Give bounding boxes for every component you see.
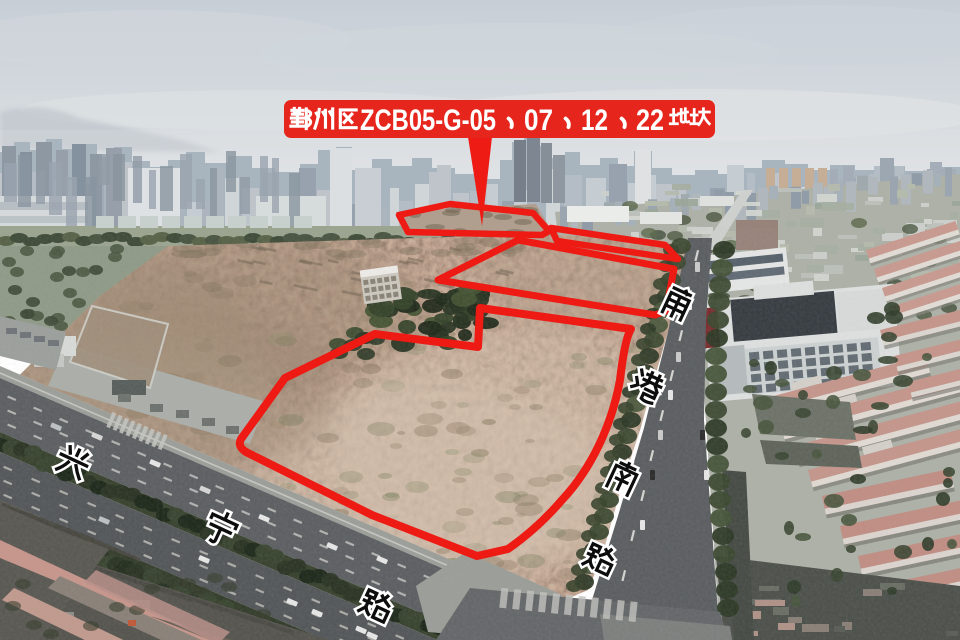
svg-text:ZCB05-G-05: ZCB05-G-05 [360,104,496,137]
svg-text:22: 22 [636,104,664,137]
svg-text:12: 12 [581,104,608,137]
svg-text:07: 07 [524,104,553,137]
